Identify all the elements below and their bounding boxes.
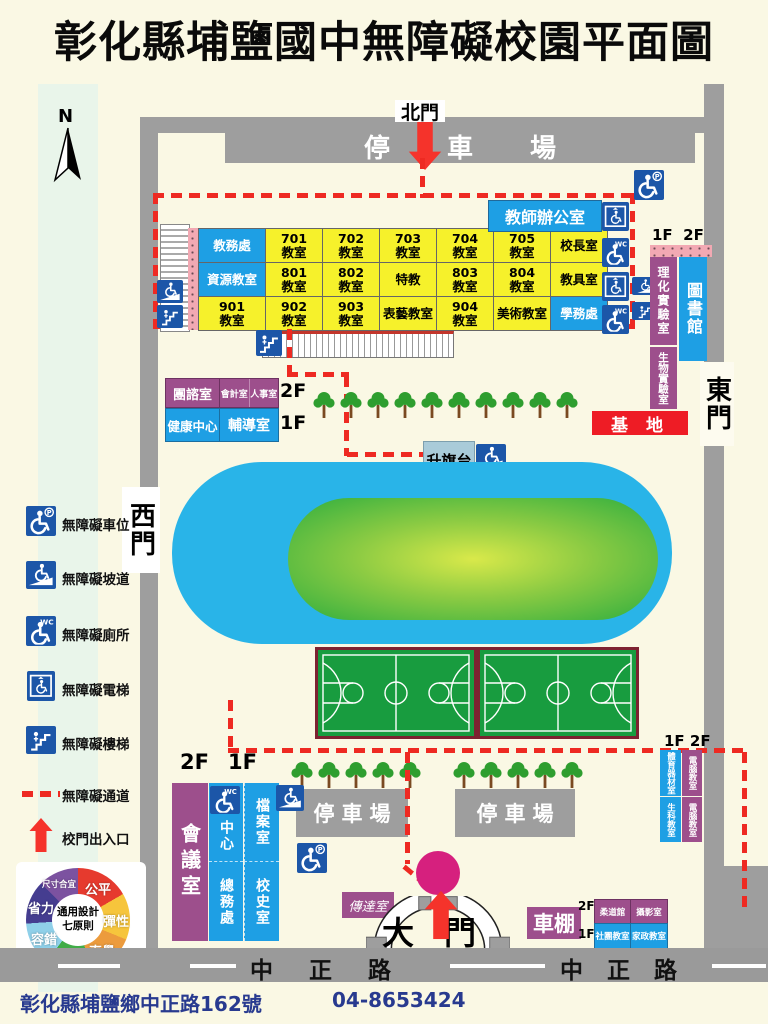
room-health-center: 健康中心: [165, 408, 220, 442]
room-accounting-personnel: 會計室 人事室: [219, 378, 279, 408]
room-705: 705 教室: [494, 229, 550, 262]
road-name-left: 中 正 路: [250, 951, 405, 985]
road-center-line: [712, 964, 766, 968]
tree-icon: [366, 390, 390, 420]
compass-north-label: N: [58, 106, 73, 127]
east-wall-lower: [704, 446, 724, 950]
legend-label: 無障礙通道: [62, 785, 130, 805]
main-gate-arrow-icon: [424, 886, 458, 944]
tree-icon: [420, 390, 444, 420]
room-meeting: 會議室: [172, 783, 208, 941]
accessible-toilet-icon: [26, 616, 56, 646]
tree-icon: [452, 760, 476, 790]
tree-icon: [474, 390, 498, 420]
room-703: 703 教室: [380, 229, 436, 262]
accessible-path: [405, 752, 410, 864]
room-judo-hall: 柔道館: [594, 899, 631, 924]
room-special-ed: 特教: [380, 263, 436, 296]
room-804: 804 教室: [494, 263, 550, 296]
legend-label: 無障礙樓梯: [62, 733, 130, 753]
compass-needle-icon: [50, 126, 86, 184]
tree-icon: [398, 760, 422, 790]
tree-icon: [533, 760, 557, 790]
southwest-parking-lot: 停車場: [296, 789, 408, 837]
accessible-toilet-icon: [602, 238, 629, 267]
tree-icon: [501, 390, 525, 420]
accessible-elevator-icon: [602, 202, 629, 231]
north-gate-arrow-icon: [407, 122, 443, 170]
field-infield: [288, 498, 658, 620]
room-701: 701 教室: [266, 229, 322, 262]
tree-icon: [447, 390, 471, 420]
floor-1f-label: 1F: [228, 750, 257, 774]
floor-1f-label: 1F: [578, 927, 595, 941]
accessible-parking-icon: [297, 843, 327, 873]
classroom-grid: 教務處 701 教室 702 教室 703 教室 704 教室 705 教室 校…: [198, 228, 608, 331]
floor-2f-label: 2F: [578, 899, 595, 913]
room-accounting: 會計室: [220, 379, 250, 407]
east-block-floor-labels: 1F 2F: [664, 732, 711, 750]
floor-2f-label: 2F: [280, 380, 306, 402]
north-parking-lot: 停 車 場: [225, 129, 695, 163]
room-pe-equipment: 體育器材室: [660, 750, 681, 796]
road-center-line: [450, 964, 545, 968]
floor-1f-label: 1F: [664, 732, 685, 750]
room-802: 802 教室: [323, 263, 379, 296]
ud-wheel-center-label: 通用設計 七原則: [57, 906, 99, 933]
room-general-affairs: 總務處: [209, 862, 243, 941]
room-702: 702 教室: [323, 229, 379, 262]
room-902: 902 教室: [266, 297, 322, 330]
floor-2f-label: 2F: [180, 750, 209, 774]
tree-icon: [555, 390, 579, 420]
road-center-line: [58, 964, 120, 968]
accessible-path: [347, 452, 423, 457]
room-library: 圖書館: [679, 257, 707, 361]
ud-segment-label: 容錯: [30, 929, 58, 948]
school-address: 彰化縣埔鹽鄉中正路162號: [20, 988, 262, 1017]
ud-wheel-center: 通用設計 七原則: [52, 894, 104, 946]
legend-stripe: [38, 84, 98, 992]
room-801: 801 教室: [266, 263, 322, 296]
tree-icon: [371, 760, 395, 790]
room-fine-arts: 美術教室: [494, 297, 550, 330]
east-wall-upper: [704, 84, 724, 362]
room-bike-shed: 車棚: [527, 907, 581, 939]
tree-icon: [393, 390, 417, 420]
accessible-stairs-icon: [26, 726, 56, 754]
accessible-toilet-icon: [602, 305, 629, 334]
accessible-elevator-icon: [27, 671, 55, 701]
accessible-ramp-icon: [26, 561, 56, 589]
room-biology-lab: 生物實驗室: [650, 347, 677, 409]
floor-1f-label: 1F: [280, 412, 306, 434]
ud-segment-label: 省力: [26, 898, 56, 917]
legend-label: 無障礙電梯: [62, 679, 130, 699]
legend-label: 無障礙坡道: [62, 568, 130, 588]
accessible-stairs-icon: [256, 330, 282, 356]
room-904: 904 教室: [437, 297, 493, 330]
room-803: 803 教室: [437, 263, 493, 296]
accessible-path: [287, 372, 349, 377]
road-name-right: 中 正 路: [560, 951, 685, 985]
room-personnel: 人事室: [250, 379, 279, 407]
room-photography: 攝影室: [630, 899, 668, 924]
tree-icon: [528, 390, 552, 420]
tree-icon: [317, 760, 341, 790]
basketball-courts: [315, 647, 639, 739]
room-counseling: 輔導室: [219, 408, 279, 442]
tree-icon: [479, 760, 503, 790]
page-title: 彰化縣埔鹽國中無障礙校園平面圖: [0, 8, 768, 70]
accessible-path: [420, 158, 425, 198]
accessible-ramp-icon: [276, 785, 304, 811]
floor-2f-label: 2F: [690, 732, 711, 750]
accessible-stairs-icon: [157, 305, 183, 328]
legend-label: 校門出入口: [62, 828, 130, 848]
room-student-affairs: 學務處: [551, 297, 607, 330]
room-school-history: 校史室: [244, 862, 279, 941]
room-903: 903 教室: [323, 297, 379, 330]
accessible-parking-icon: [634, 170, 664, 200]
room-computer-classroom: 電腦教室: [682, 750, 702, 796]
tree-icon: [344, 760, 368, 790]
room-club-classroom: 社團教室: [594, 923, 631, 949]
accessible-parking-icon: [26, 506, 56, 536]
room-resource: 資源教室: [199, 263, 265, 296]
room-group-counseling: 團諮室: [165, 378, 220, 408]
legend-label: 無障礙廁所: [62, 624, 130, 644]
school-phone: 04-8653424: [332, 988, 466, 1012]
accessible-path: [742, 752, 747, 908]
road-center-line: [190, 964, 236, 968]
accessible-path: [287, 329, 292, 377]
ud-segment-label: 彈性: [102, 911, 130, 930]
room-life-science: 生科教室: [660, 797, 681, 842]
floor-1f-label: 1F: [652, 226, 673, 244]
accessible-path-dashed-line: [22, 791, 60, 797]
room-teacher-office: 教師辦公室: [488, 200, 602, 232]
accessible-toilet-icon: [210, 786, 240, 814]
tree-icon: [312, 390, 336, 420]
north-gate-label: 北門: [395, 100, 445, 122]
room-performing-arts: 表藝教室: [380, 297, 436, 330]
toilet-strip: [650, 245, 712, 257]
east-wing-floor-labels: 1F 2F: [652, 226, 704, 244]
southeast-parking-lot: 停車場: [455, 789, 575, 837]
accessible-elevator-icon: [602, 272, 629, 301]
ud-segment-label: 公平: [83, 879, 113, 898]
room-archives: 檔案室: [244, 783, 279, 862]
accessible-path: [153, 193, 635, 198]
accessible-path: [228, 700, 233, 752]
tree-icon: [560, 760, 584, 790]
east-gate-label: 東門: [700, 362, 734, 446]
accessible-ramp-icon: [157, 280, 183, 303]
room-physics-chemistry-lab: 理化實驗室: [650, 257, 677, 345]
room-teaching-aids: 教具室: [551, 263, 607, 296]
room-principal: 校長室: [551, 229, 607, 262]
room-academic-affairs: 教務處: [199, 229, 265, 262]
room-704: 704 教室: [437, 229, 493, 262]
base-area-label: 基 地: [592, 411, 688, 435]
ud-segment-label: 尺寸合宜: [36, 878, 82, 890]
room-901: 901 教室: [199, 297, 265, 330]
tree-icon: [506, 760, 530, 790]
campus-map: 彰化縣埔鹽國中無障礙校園平面圖 N 北門 停 車 場 教務處 701 教室 70…: [0, 0, 768, 1024]
room-computer-classroom: 電腦教室: [682, 797, 702, 842]
legend-label: 無障礙車位: [62, 514, 130, 534]
toilet-strip: [188, 228, 198, 330]
gate-entrance-arrow-icon: [28, 818, 54, 852]
tree-icon: [339, 390, 363, 420]
room-home-economics: 家政教室: [630, 923, 668, 949]
floor-2f-label: 2F: [683, 226, 704, 244]
